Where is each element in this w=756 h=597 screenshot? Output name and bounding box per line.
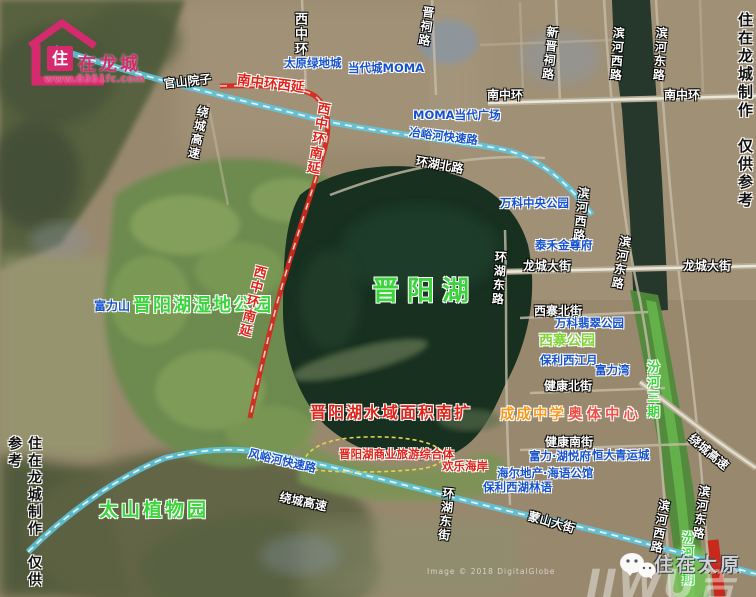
- watermark-right: 住在龙城制作 仅供参考: [735, 12, 756, 210]
- watermark-left: 住在龙城制作 仅供参考: [4, 436, 44, 597]
- satellite-map-screenshot: 住 在龙城 www.0351fc.com 住在龙城制作 仅供参考 住在龙城制作 …: [0, 0, 756, 597]
- wechat-icon: [619, 552, 657, 580]
- site-logo[interactable]: 住 在龙城 www.0351fc.com: [20, 10, 200, 88]
- logo-house-char: 住: [47, 46, 73, 71]
- imagery-attribution: Image © 2018 DigitalGlobe: [427, 567, 555, 576]
- wechat-account-name: 住在太原: [654, 550, 742, 577]
- logo-url: www.0351fc.com: [44, 73, 145, 85]
